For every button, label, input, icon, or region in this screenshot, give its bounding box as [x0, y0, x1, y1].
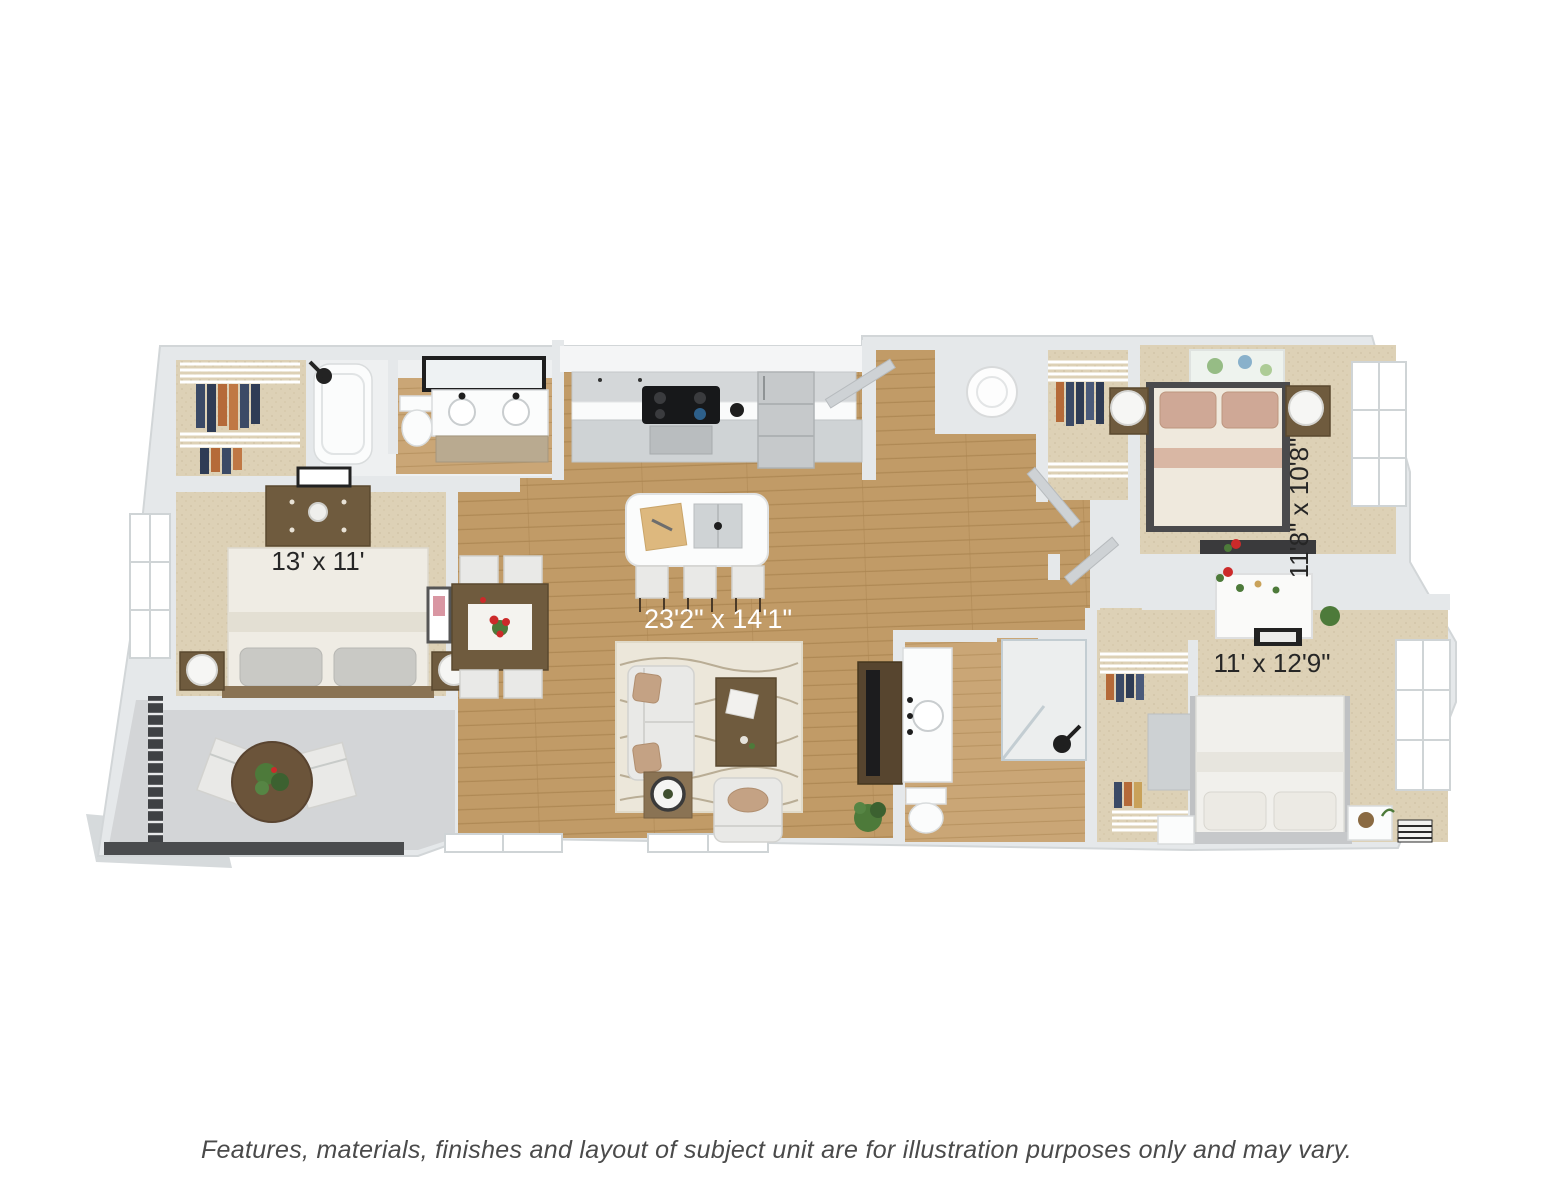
- dimension-label-living: 23'2" x 14'1": [644, 604, 792, 634]
- pillow: [632, 742, 662, 773]
- faucet-icon: [714, 522, 722, 530]
- hanging-clothes-icon: [1056, 382, 1104, 426]
- bedroom-bottom-right-window: [1396, 640, 1450, 790]
- pillow: [1222, 392, 1278, 428]
- toilet: [400, 396, 434, 446]
- lower-cabinets: [572, 420, 862, 462]
- faucet-icon: [907, 697, 913, 703]
- washer-icon: [967, 367, 1017, 417]
- hat-icon: [1358, 812, 1374, 828]
- kettle-icon: [730, 403, 744, 417]
- dresser: [266, 486, 370, 546]
- pillow: [1204, 792, 1266, 830]
- balcony-railing: [148, 696, 163, 848]
- headboard: [1188, 832, 1352, 844]
- closet-dresser: [1148, 714, 1196, 790]
- pillow: [632, 672, 662, 703]
- vase-icon: [309, 503, 327, 521]
- hanging-clothes-icon: [1114, 782, 1142, 808]
- bed: [1146, 382, 1290, 532]
- oven: [650, 426, 712, 454]
- refrigerator: [758, 372, 814, 468]
- dining-chair: [460, 670, 498, 698]
- tv-console: [858, 662, 902, 784]
- disclaimer-text: Features, materials, finishes and layout…: [0, 1136, 1553, 1165]
- flower-icon: [1231, 539, 1241, 549]
- bar-stool: [684, 566, 716, 598]
- dining-chair: [504, 670, 542, 698]
- double-vanity: [424, 358, 548, 462]
- bar-stool: [636, 566, 668, 598]
- table-lamp-icon: [187, 655, 217, 685]
- kitchen-island: [626, 494, 768, 566]
- bar-stool: [732, 566, 764, 598]
- living-room-window-1: [445, 834, 562, 852]
- dimension-label-bedroom-left: 13' x 11': [271, 546, 364, 576]
- vanity: [903, 648, 952, 782]
- bedroom-top-right-window: [1352, 362, 1406, 506]
- kitchen-soffit: [560, 346, 862, 372]
- side-table: [644, 772, 692, 818]
- walk-in-shower: [1002, 640, 1086, 760]
- living-room: [616, 642, 902, 842]
- striped-bench: [1398, 820, 1432, 842]
- pillow: [1274, 792, 1336, 830]
- wall-art: [298, 468, 350, 486]
- pillow: [728, 788, 768, 812]
- headboard: [222, 686, 434, 698]
- vanity-mirror: [424, 358, 544, 390]
- nightstand: [1158, 816, 1194, 844]
- bedroom-left-window: [130, 514, 170, 658]
- tv-icon: [866, 670, 880, 776]
- potted-plant-icon: [1320, 606, 1340, 626]
- floor-plan-rendering: 13' x 11' 23'2" x 14'1" 11'8" x 10'8" 11…: [0, 0, 1553, 1200]
- dimension-label-bedroom-bottom-right: 11' x 12'9": [1214, 648, 1331, 678]
- dimension-label-bedroom-top-right: 11'8" x 10'8": [1284, 438, 1314, 579]
- table-lamp-icon: [1289, 391, 1323, 425]
- faucet-icon: [459, 393, 466, 400]
- sink: [913, 701, 943, 731]
- armchair: [714, 778, 782, 842]
- vanity-cabinet: [436, 436, 548, 462]
- pillow: [240, 648, 322, 686]
- bed: [1188, 696, 1352, 844]
- dining-chair: [504, 556, 542, 584]
- table-lamp-icon: [1111, 391, 1145, 425]
- nightstand: [1348, 806, 1394, 840]
- toilet: [906, 788, 946, 833]
- sink: [503, 399, 529, 425]
- pillow: [1160, 392, 1216, 428]
- faucet-icon: [513, 393, 520, 400]
- balcony-edge: [104, 842, 404, 855]
- cooktop: [642, 386, 720, 454]
- sofa: [628, 666, 694, 780]
- dining-chair: [460, 556, 498, 584]
- floor-plan-page: 13' x 11' 23'2" x 14'1" 11'8" x 10'8" 11…: [0, 0, 1553, 1200]
- book-icon: [726, 689, 758, 718]
- coffee-table: [716, 678, 776, 766]
- sink: [449, 399, 475, 425]
- pillow: [334, 648, 416, 686]
